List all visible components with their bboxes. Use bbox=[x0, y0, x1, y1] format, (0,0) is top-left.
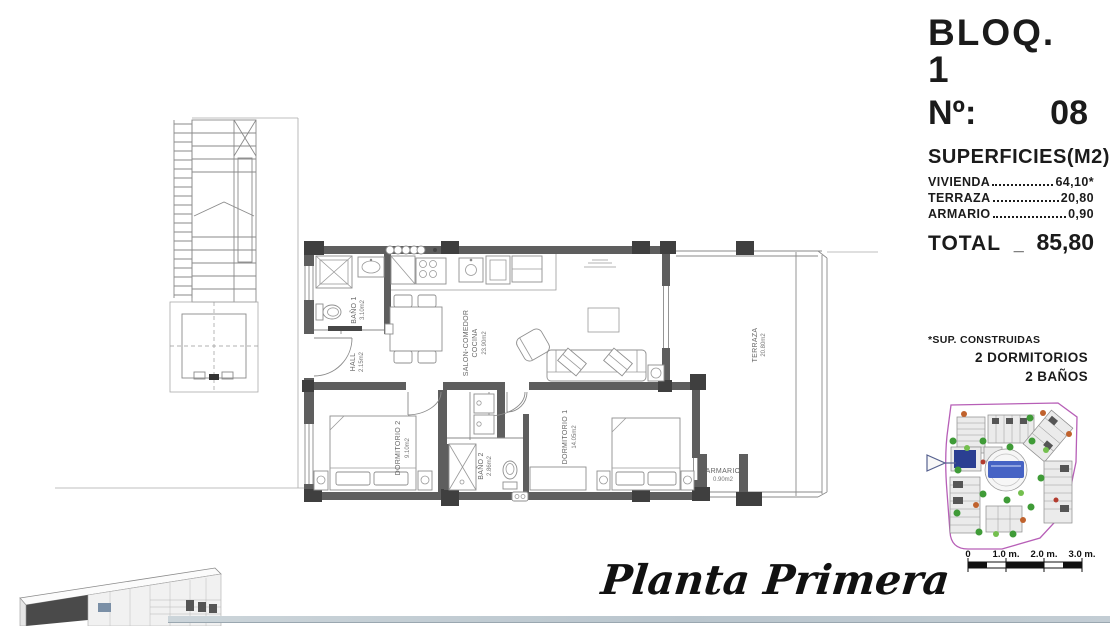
superficies-row-armario: ARMARIO 0,90 bbox=[928, 207, 1094, 221]
armario-area: 0.90m2 bbox=[713, 477, 734, 483]
unit-label: Nº: bbox=[928, 94, 976, 133]
row-label: ARMARIO bbox=[928, 207, 991, 221]
superficies-row-terraza: TERRAZA 20,80 bbox=[928, 191, 1094, 205]
dotted-leader bbox=[992, 183, 1053, 186]
dotted-leader bbox=[993, 199, 1059, 202]
armario-label: ARMARIO bbox=[706, 468, 741, 475]
dining-table bbox=[385, 295, 442, 363]
stairwell bbox=[55, 118, 306, 488]
row-label: VIVIENDA bbox=[928, 175, 990, 189]
total-label: TOTAL bbox=[928, 232, 1001, 256]
scale-bar: 0 1.0 m. 2.0 m. 3.0 m. bbox=[965, 549, 1095, 572]
dorm1-area: 14.05m2 bbox=[572, 425, 578, 449]
baths-note: 2 BAÑOS bbox=[928, 369, 1088, 384]
notes: *SUP. CONSTRUIDAS 2 DORMITORIOS 2 BAÑOS bbox=[928, 334, 1088, 384]
footer-strip bbox=[168, 616, 1110, 623]
header: BLOQ. 1 Nº: 08 bbox=[928, 14, 1088, 133]
dotted-leader bbox=[993, 215, 1067, 218]
row-value: 0,90 bbox=[1068, 207, 1094, 221]
superficies-title: SUPERFICIES(M2) bbox=[928, 146, 1094, 169]
superficies-row-vivienda: VIVIENDA 64,10* bbox=[928, 175, 1094, 189]
bano1-area: 3.10m2 bbox=[360, 299, 366, 320]
dorm2-label: DORMITORIO 2 bbox=[395, 421, 402, 476]
superficies-table: SUPERFICIES(M2) VIVIENDA 64,10* TERRAZA … bbox=[928, 146, 1094, 256]
block-title: BLOQ. 1 bbox=[928, 14, 1088, 88]
hall-label: HALL bbox=[350, 353, 357, 372]
site-minimap bbox=[927, 403, 1077, 549]
pool bbox=[988, 461, 1024, 478]
bedrooms-note: 2 DORMITORIOS bbox=[928, 350, 1088, 365]
bedroom1-furniture bbox=[530, 418, 694, 490]
total-separator: _ bbox=[1014, 234, 1024, 255]
floorplan-sheet: BAÑO 1 3.10m2 HALL 2.15m2 SALON-COMEDOR … bbox=[0, 0, 1110, 626]
total-value: 85,80 bbox=[1036, 229, 1094, 256]
salon-area: 23.90m2 bbox=[482, 331, 488, 355]
row-value: 20,80 bbox=[1061, 191, 1094, 205]
row-label: TERRAZA bbox=[928, 191, 991, 205]
salon-label2: COCINA bbox=[472, 328, 479, 357]
dorm1-label: DORMITORIO 1 bbox=[562, 410, 569, 465]
apartment-plan: BAÑO 1 3.10m2 HALL 2.15m2 SALON-COMEDOR … bbox=[302, 241, 878, 506]
row-value: 64,10* bbox=[1055, 175, 1094, 189]
bano1-label: BAÑO 1 bbox=[349, 296, 358, 323]
bano2-area: 2.86m2 bbox=[487, 455, 493, 476]
terraza-label: TERRAZA bbox=[752, 328, 759, 363]
highlighted-unit bbox=[954, 450, 976, 468]
plan-title: Planta Primera bbox=[595, 556, 955, 604]
hall-area: 2.15m2 bbox=[359, 351, 365, 372]
footnote: *SUP. CONSTRUIDAS bbox=[928, 334, 1088, 346]
terraza-area: 20.80m2 bbox=[761, 333, 767, 357]
bedroom2-furniture bbox=[314, 416, 432, 490]
bathroom1-fixtures bbox=[316, 256, 384, 320]
salon-label: SALON-COMEDOR bbox=[463, 310, 470, 377]
bano2-label: BAÑO 2 bbox=[476, 452, 485, 479]
unit-number: 08 bbox=[1050, 94, 1088, 133]
ac-unit bbox=[512, 492, 528, 501]
superficies-total: TOTAL _ 85,80 bbox=[928, 229, 1094, 256]
dorm2-area: 9.10m2 bbox=[405, 437, 411, 458]
